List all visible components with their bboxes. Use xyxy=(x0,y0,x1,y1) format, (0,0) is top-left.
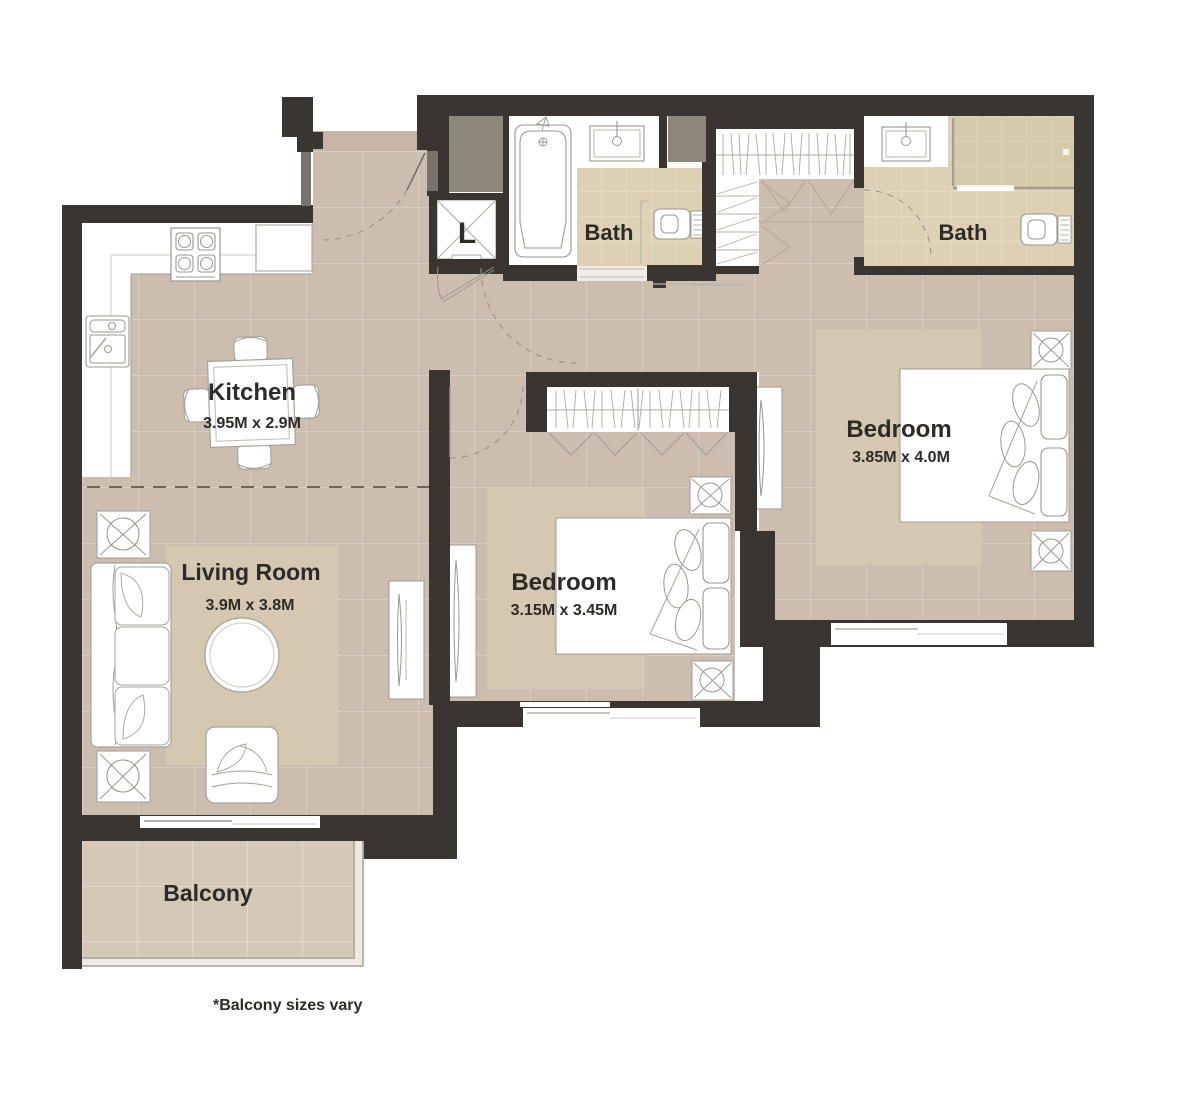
svg-text:3.95M x 2.9M: 3.95M x 2.9M xyxy=(203,415,301,432)
svg-text:Bedroom: Bedroom xyxy=(511,569,616,596)
svg-text:Bath: Bath xyxy=(939,220,988,245)
svg-text:Bedroom: Bedroom xyxy=(846,416,951,443)
svg-text:3.15M x 3.45M: 3.15M x 3.45M xyxy=(511,602,618,619)
svg-text:3.85M x 4.0M: 3.85M x 4.0M xyxy=(852,449,950,466)
svg-text:Bath: Bath xyxy=(585,220,634,245)
svg-text:Living Room: Living Room xyxy=(181,559,320,585)
svg-text:L: L xyxy=(458,217,476,250)
svg-text:Kitchen: Kitchen xyxy=(208,379,296,406)
svg-text:*Balcony sizes vary: *Balcony sizes vary xyxy=(213,997,363,1014)
svg-text:3.9M x 3.8M: 3.9M x 3.8M xyxy=(206,597,295,614)
svg-text:Balcony: Balcony xyxy=(163,880,253,906)
